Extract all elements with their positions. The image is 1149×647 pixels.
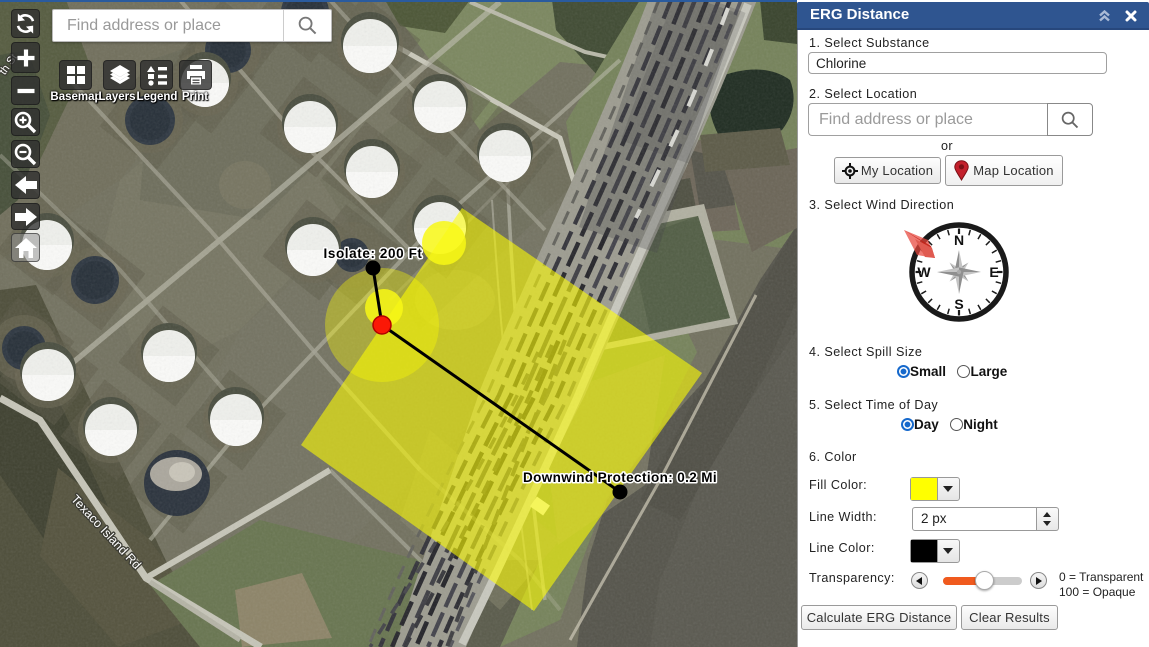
svg-text:E: E: [989, 264, 998, 280]
svg-text:W: W: [917, 264, 931, 280]
svg-text:Downwind Protection: 0.2 Mi: Downwind Protection: 0.2 Mi: [523, 470, 717, 485]
svg-text:N: N: [954, 232, 964, 248]
svg-text:S: S: [954, 296, 963, 312]
svg-text:Isolate: 200 Ft: Isolate: 200 Ft: [323, 246, 422, 261]
